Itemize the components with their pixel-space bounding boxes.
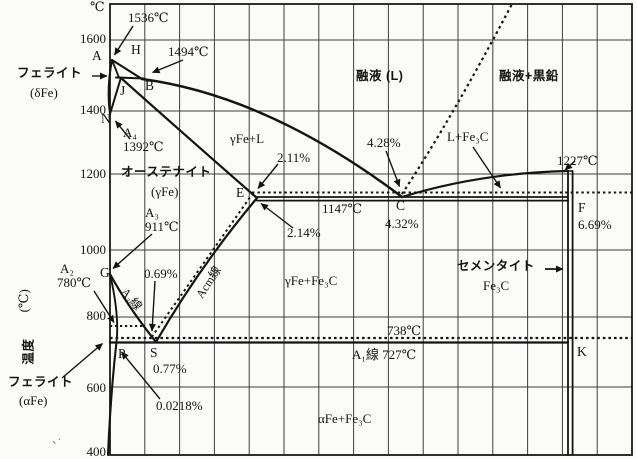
label-911c: 911℃ bbox=[145, 220, 179, 234]
point-A: A bbox=[92, 49, 102, 63]
point-K: K bbox=[577, 345, 587, 359]
label-0-69pct: 0.69% bbox=[144, 267, 178, 281]
label-a2: A₂ bbox=[60, 262, 74, 276]
region-cementite-formula: Fe₃C bbox=[483, 279, 509, 293]
point-N: N bbox=[101, 112, 111, 126]
point-C: C bbox=[396, 199, 405, 213]
stray-scan-marks: 、· bbox=[52, 435, 61, 447]
region-ferrite-delta: フェライト bbox=[17, 67, 82, 80]
point-G: G bbox=[100, 266, 110, 280]
point-J: J bbox=[120, 84, 125, 98]
phase-diagram: ℃ 1600 1400 1200 1000 800 600 400 (℃) 温度… bbox=[0, 0, 637, 459]
label-1536c: 1536℃ bbox=[128, 11, 169, 25]
region-austenite-formula: (γFe) bbox=[151, 185, 178, 199]
label-4-28pct: 4.28% bbox=[367, 136, 401, 150]
phase-boundaries bbox=[108, 60, 573, 455]
tick-1200: 1200 bbox=[74, 167, 106, 181]
region-liquid: 融液 (L) bbox=[356, 70, 403, 83]
tick-1600: 1600 bbox=[74, 32, 106, 46]
label-6-69pct: 6.69% bbox=[578, 218, 612, 232]
region-gamma-plus-l: γFe+L bbox=[230, 132, 264, 146]
tick-1000: 1000 bbox=[74, 243, 106, 257]
region-cementite: セメンタイト bbox=[457, 260, 535, 273]
label-0-77pct: 0.77% bbox=[153, 362, 187, 376]
label-a1-727c: A₁線 727℃ bbox=[352, 348, 416, 362]
label-1494c: 1494℃ bbox=[168, 45, 209, 59]
label-0-0218pct: 0.0218% bbox=[156, 399, 203, 413]
label-1227c: 1227℃ bbox=[557, 154, 598, 168]
point-S: S bbox=[150, 346, 158, 360]
point-E: E bbox=[236, 186, 244, 200]
region-gamma-plus-fe3c: γFe+Fe₃C bbox=[285, 274, 337, 288]
label-2-14pct: 2.14% bbox=[287, 226, 321, 240]
tick-600: 600 bbox=[74, 381, 106, 395]
label-4-32pct: 4.32% bbox=[385, 217, 419, 231]
region-liquid-graphite: 融液+黒鉛 bbox=[499, 70, 559, 83]
region-alpha-plus-fe3c: αFe+Fe₃C bbox=[318, 412, 371, 426]
point-H: H bbox=[131, 43, 141, 57]
region-ferrite-delta-formula: (δFe) bbox=[30, 86, 58, 100]
point-P: P bbox=[118, 347, 126, 361]
label-780c: 780℃ bbox=[57, 276, 91, 290]
label-738c: 738℃ bbox=[387, 324, 421, 338]
y-axis-unit: ℃ bbox=[90, 0, 105, 14]
label-a4: A₄ bbox=[123, 126, 137, 140]
tick-400: 400 bbox=[74, 445, 106, 459]
y-axis-title: 温度 bbox=[22, 339, 35, 365]
region-ferrite-alpha-formula: (αFe) bbox=[19, 394, 47, 408]
region-austenite: オーステナイト bbox=[121, 166, 211, 179]
point-F: F bbox=[578, 201, 586, 215]
region-l-plus-fe3c: L+Fe₃C bbox=[447, 130, 488, 144]
label-1392c: 1392℃ bbox=[123, 140, 164, 154]
label-1147c: 1147℃ bbox=[322, 202, 362, 216]
label-2-11pct: 2.11% bbox=[277, 151, 310, 165]
label-a3: A₃ bbox=[145, 206, 159, 220]
point-B: B bbox=[145, 79, 154, 93]
y-axis-unit-label: (℃) bbox=[17, 289, 31, 312]
tick-800: 800 bbox=[74, 309, 106, 323]
region-ferrite-alpha: フェライト bbox=[8, 376, 73, 389]
